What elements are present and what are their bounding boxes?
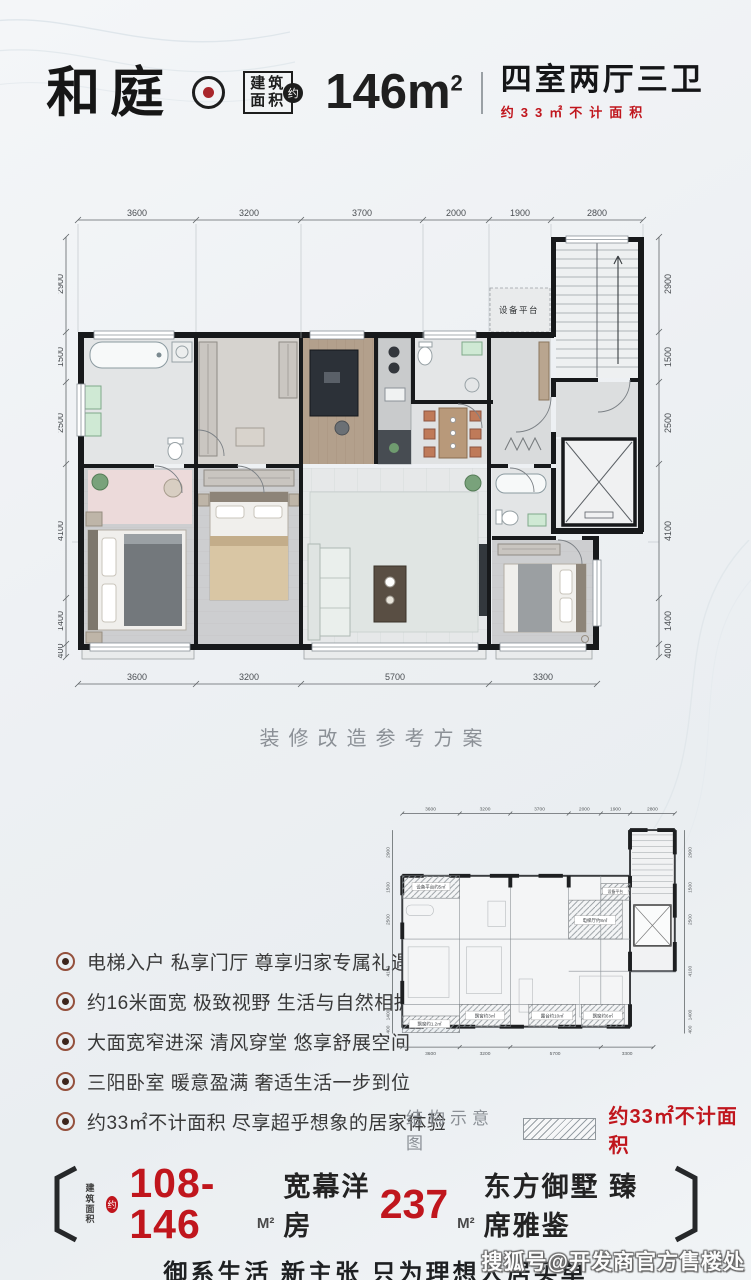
bullet-icon [56,992,75,1011]
structure-legend: 结构示意图 约33㎡不计面积 [406,1100,751,1158]
dim-label: 3600 [425,807,436,813]
feature-item: 电梯入户 私享门厅 尊享归家专属礼遇 [56,948,408,975]
dim-label: 2900 [663,274,673,294]
structure-label: 飘窗约1.2㎡ [417,1021,442,1028]
banner-type2: 东方御墅 臻席雅鉴 [484,1165,666,1243]
banner-range-unit: M² [257,1215,275,1244]
dim-label: 3600 [127,208,147,218]
dim-label: 3600 [425,1051,436,1057]
banner-value2: 237 [380,1184,448,1225]
watermark: 搜狐号@开发商官方售楼处 [482,1246,745,1276]
dim-label: 4100 [687,965,693,976]
dim-label: 3200 [480,1051,491,1057]
feature-list: 电梯入户 私享门厅 尊享归家专属礼遇 约16米面宽 极致视野 生活与自然相拥 大… [56,948,408,1148]
feature-text: 三阳卧室 暖意盈满 奢适生活一步到位 [87,1068,411,1095]
dim-label: 1500 [663,347,673,367]
dim-label: 2000 [579,807,590,813]
feature-text: 约33㎡不计面积 尽享超乎想象的居家体验 [87,1108,446,1135]
rooms-block: 四室两厅三卫 约33㎡不计面积 [501,64,705,121]
main-floor-plan: 3600 3200 3700 2000 1900 2800 2900 1500 … [58,192,698,722]
feature-item: 大面宽窄进深 清风穿堂 悠享舒展空间 [56,1028,408,1055]
dim-label: 4100 [58,521,65,541]
feature-item: 三阳卧室 暖意盈满 奢适生活一步到位 [56,1068,408,1095]
dim-label: 3700 [534,807,545,813]
header-divider [481,72,483,114]
dim-label: 1400 [663,611,673,631]
dim-label: 5700 [550,1051,561,1057]
area-box-line1: 建筑 [250,76,286,92]
banner-type1: 宽幕洋房 [283,1165,370,1243]
dim-label: 1500 [386,882,392,893]
dim-label: 2900 [687,847,693,858]
dim-label: 1900 [610,807,621,813]
left-bracket-icon [52,1164,78,1244]
right-bracket-icon [674,1164,700,1244]
dim-label: 2900 [58,274,65,294]
dim-label: 4100 [663,521,673,541]
dim-label: 2500 [663,413,673,433]
area-box-line2: 面积 [250,93,286,109]
banner-approx-badge: 约 [106,1196,119,1213]
not-counted-area-text: 约33㎡不计面积 [609,1100,751,1158]
feature-text: 电梯入户 私享门厅 尊享归家专属礼遇 [87,948,411,975]
dim-label: 3200 [239,208,259,218]
dim-label: 400 [386,1025,392,1033]
brand-dot-icon [192,76,225,109]
dim-label: 3700 [352,208,372,218]
area-value: 146m2 [325,68,463,117]
bullet-icon [56,1112,75,1131]
hatch-swatch-icon [523,1118,595,1140]
structure-plan: 设备平台约5㎡ 设备平台 电梯厅约8㎡ 飘窗约1.2㎡ 飘窗约3㎡ 露台约10㎡… [372,796,744,1088]
dim-label: 3200 [239,672,259,682]
dim-label: 1500 [58,347,65,367]
area-box: 建筑 面积 约 [243,71,293,113]
equipment-platform-label: 设备平台 [499,305,539,315]
dim-label: 5700 [385,672,405,682]
structure-label: 电梯厅约8㎡ [583,917,608,924]
dim-label: 3300 [533,672,553,682]
project-name: 和庭 [46,66,174,120]
bullet-icon [56,1072,75,1091]
structure-caption: 结构示意图 [406,1104,510,1154]
banner-value2-unit: M² [457,1215,475,1244]
dim-label: 400 [58,643,65,658]
structure-label: 设备平台 [608,889,624,894]
dim-label: 2500 [687,914,693,925]
banner-area-range: 108-146 [129,1163,248,1245]
dim-label: 3200 [480,807,491,813]
feature-text: 大面宽窄进深 清风穿堂 悠享舒展空间 [87,1028,411,1055]
rooms-title: 四室两厅三卫 [501,64,705,95]
feature-item: 约33㎡不计面积 尽享超乎想象的居家体验 [56,1108,408,1135]
banner-area-box: 建筑面积 [86,1183,101,1224]
dim-label: 1900 [510,208,530,218]
dim-label: 4100 [386,965,392,976]
dim-label: 1400 [58,611,65,631]
approx-badge: 约 [283,83,303,103]
dim-label: 2500 [58,413,65,433]
dim-label: 3600 [127,672,147,682]
structure-label: 飘窗约3㎡ [475,1012,496,1019]
dim-label: 400 [687,1025,693,1033]
dim-label: 2800 [647,807,658,813]
area-note: 约33㎡不计面积 [501,102,649,121]
dim-label: 2900 [386,847,392,858]
feature-item: 约16米面宽 极致视野 生活与自然相拥 [56,988,408,1015]
dim-label: 1400 [386,1009,392,1020]
dim-label: 3300 [622,1051,633,1057]
poster-page: 和庭 建筑 面积 约 146m2 四室两厅三卫 约33㎡不计面积 [0,0,751,1280]
dim-label: 2500 [386,914,392,925]
dim-label: 400 [663,643,673,658]
main-plan-caption: 装修改造参考方案 [0,722,751,751]
dim-label: 2000 [446,208,466,218]
dim-label: 1400 [687,1009,693,1020]
bullet-icon [56,1032,75,1051]
feature-text: 约16米面宽 极致视野 生活与自然相拥 [87,988,413,1015]
structure-label: 飘窗约6㎡ [593,1012,614,1019]
dim-label: 1500 [687,882,693,893]
structure-label: 露台约10㎡ [541,1012,564,1019]
header: 和庭 建筑 面积 约 146m2 四室两厅三卫 约33㎡不计面积 [0,64,751,121]
bullet-icon [56,952,75,971]
dim-label: 2800 [587,208,607,218]
structure-label: 设备平台约5㎡ [416,883,446,890]
